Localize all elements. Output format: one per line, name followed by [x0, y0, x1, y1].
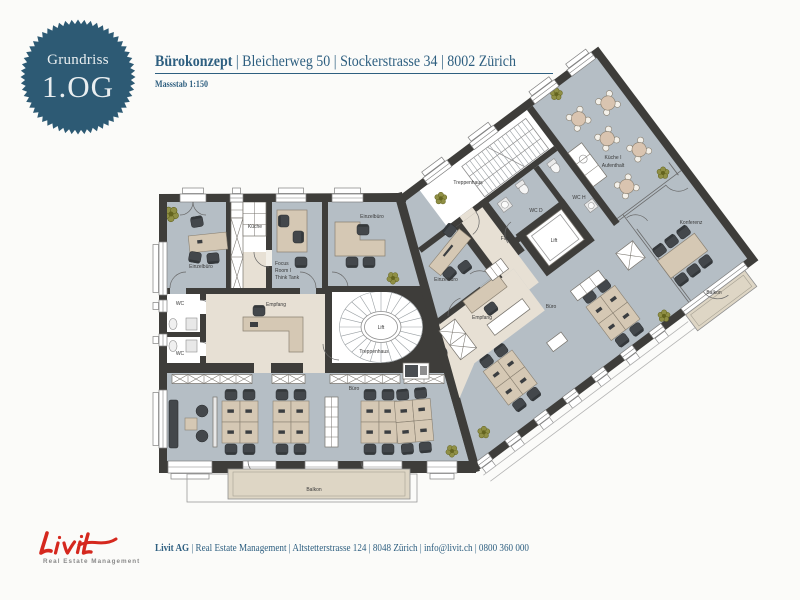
svg-text:Flur: Flur [501, 236, 510, 242]
svg-text:Aufenthalt: Aufenthalt [602, 163, 625, 169]
svg-text:Balkon: Balkon [306, 487, 322, 493]
svg-text:Lift: Lift [378, 325, 385, 331]
svg-text:Einzelbüro: Einzelbüro [360, 214, 384, 220]
svg-text:Empfang: Empfang [472, 315, 492, 321]
svg-text:Grundriss: Grundriss [47, 52, 109, 68]
svg-text:WC D: WC D [529, 208, 543, 214]
svg-text:Think Tank: Think Tank [275, 275, 300, 281]
svg-text:Room I: Room I [275, 268, 291, 274]
svg-text:Focus: Focus [275, 261, 289, 267]
svg-text:Büro: Büro [546, 304, 557, 310]
svg-text:Real Estate Management: Real Estate Management [43, 558, 140, 565]
svg-text:1.OG: 1.OG [42, 69, 114, 104]
svg-text:Küche: Küche [248, 224, 262, 230]
svg-text:Bürokonzept | Bleicherweg 50 |: Bürokonzept | Bleicherweg 50 | Stockerst… [155, 53, 516, 70]
svg-text:Treppenhaus: Treppenhaus [453, 180, 483, 186]
svg-text:Einzelbüro: Einzelbüro [189, 264, 213, 270]
svg-text:Küche I: Küche I [605, 155, 622, 161]
svg-text:Livit AG | Real Estate Managem: Livit AG | Real Estate Management | Alts… [155, 542, 529, 554]
svg-text:WC: WC [176, 351, 185, 357]
svg-text:Lift: Lift [551, 238, 558, 244]
svg-text:Treppenhaus: Treppenhaus [359, 349, 389, 355]
svg-text:Balkon: Balkon [706, 290, 722, 296]
svg-text:Konferenz: Konferenz [680, 220, 703, 226]
svg-text:WC: WC [176, 301, 185, 307]
svg-text:WC H: WC H [572, 195, 586, 201]
svg-text:Empfang: Empfang [266, 302, 286, 308]
svg-text:Massstab 1:150: Massstab 1:150 [155, 80, 208, 90]
svg-text:Büro: Büro [349, 386, 360, 392]
svg-text:Einzelbüro: Einzelbüro [434, 277, 458, 283]
